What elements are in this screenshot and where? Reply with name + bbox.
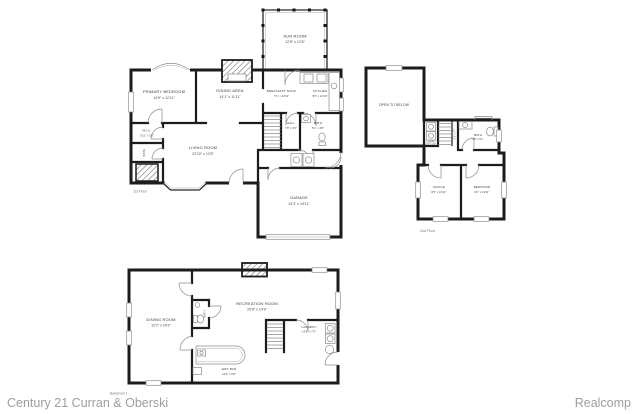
primary-bedroom-dims: 14'9" x 12'11" — [153, 96, 175, 100]
primary-bath-label: BATH — [142, 149, 146, 157]
hall-bath-label: BATH — [314, 121, 322, 125]
basement-bath-fixtures — [194, 303, 204, 323]
open-to-below-label: OPEN TO BELOW — [379, 103, 410, 107]
second-floor-stairs — [438, 124, 452, 145]
office-dims: 8'6" x 10'11" — [431, 190, 446, 194]
laundry-closet-label: LNDRY — [426, 140, 435, 143]
laundry-dims: 13'6" x 7'5" — [302, 330, 316, 334]
fireplace-firebox — [228, 74, 246, 81]
bedroom-dims: 9'2" x 10'11" — [474, 190, 489, 194]
garage-label: GARAGE — [290, 195, 308, 200]
basement-caption: Basement 1 — [110, 392, 128, 396]
basement-bath-label: BATH — [204, 310, 207, 317]
second-floor-caption: 2nd Floor — [420, 229, 436, 233]
basement-dining-label: DINING ROOM — [146, 317, 175, 322]
bedroom-label: BEDROOM — [474, 185, 491, 189]
garage-dims: 19'3" x 19'11" — [288, 202, 310, 206]
living-room-dims: 22'10" x 13'5" — [192, 152, 214, 156]
breakfast-nook-label: BREAKFAST NOOK — [267, 89, 296, 93]
hatched-closet — [136, 164, 158, 181]
wic-dims: 5'11" x 3'3" — [140, 134, 154, 138]
hall-bath-dims: 5'1" x 4'8" — [312, 126, 324, 130]
floor-plan-first: SUN ROOM 12'8" x 12'6" PRIMARY BEDROOM 1… — [129, 9, 344, 240]
laundry-label: LAUNDRY — [301, 325, 316, 329]
hall-bath-fixtures — [302, 115, 326, 146]
floor-plan-drawing: SUN ROOM 12'8" x 12'6" PRIMARY BEDROOM 1… — [0, 0, 640, 414]
floor-plan-page: SUN ROOM 12'8" x 12'6" PRIMARY BEDROOM 1… — [0, 0, 640, 414]
recreation-room-label: RECREATION ROOM — [236, 301, 278, 306]
second-floor-windows — [386, 66, 506, 222]
hall-label: HALL — [287, 121, 295, 125]
second-bath-label: BATH — [474, 133, 482, 137]
laundry-appliances — [325, 324, 335, 354]
second-bath-dims: 9'8" x 5'1" — [473, 138, 484, 141]
basement-dining-dims: 12'2" x 24'2" — [151, 324, 171, 328]
floor-plan-basement: DINING ROOM 12'2" x 24'2" RECREATION ROO… — [110, 263, 340, 396]
sun-room-label: SUN ROOM — [283, 34, 306, 39]
floor-plan-second: OPEN TO BELOW LNDRY 3'4" x 4'1" 5'1" x 7… — [366, 66, 506, 233]
wet-bar-label: WET BAR — [222, 367, 237, 371]
wic-label: W.I.C. — [142, 129, 151, 133]
laundry-closet-appliances — [427, 123, 436, 141]
stairs-up — [264, 116, 281, 148]
office-label: OFFICE — [433, 185, 445, 189]
dining-area-label: DINING AREA — [216, 88, 244, 93]
dining-area-dims: 14'1" x 11'11" — [219, 95, 241, 99]
first-floor-caption: 1st Floor — [133, 190, 148, 194]
mudroom-appliances — [291, 154, 314, 167]
kitchen-dims: 9'5" x 12'10" — [312, 94, 327, 98]
second-hall-dims: 5'1" x 7'7" — [454, 128, 457, 139]
wet-bar-dims: 14'0" x 6'8" — [222, 372, 236, 376]
kitchen-label: KITCHEN — [313, 89, 327, 93]
footer-brokerage: Century 21 Curran & Oberski — [7, 396, 168, 410]
primary-bedroom-label: PRIMARY BEDROOM — [143, 89, 185, 94]
footer-provider-logo: Realcomp — [575, 396, 631, 410]
recreation-room-dims: 25'8" x 14'9" — [247, 308, 267, 312]
laundry-closet-dims: 3'4" x 4'1" — [426, 144, 436, 146]
basement-stairs — [267, 324, 283, 349]
living-room-label: LIVING ROOM — [189, 145, 217, 150]
hall-dims: 7'8" x 3'3" — [285, 126, 297, 130]
breakfast-nook-dims: 7'1" x 12'10" — [274, 94, 289, 98]
sun-room-dims: 12'8" x 12'6" — [285, 40, 305, 44]
wet-bar-counter — [193, 346, 245, 375]
